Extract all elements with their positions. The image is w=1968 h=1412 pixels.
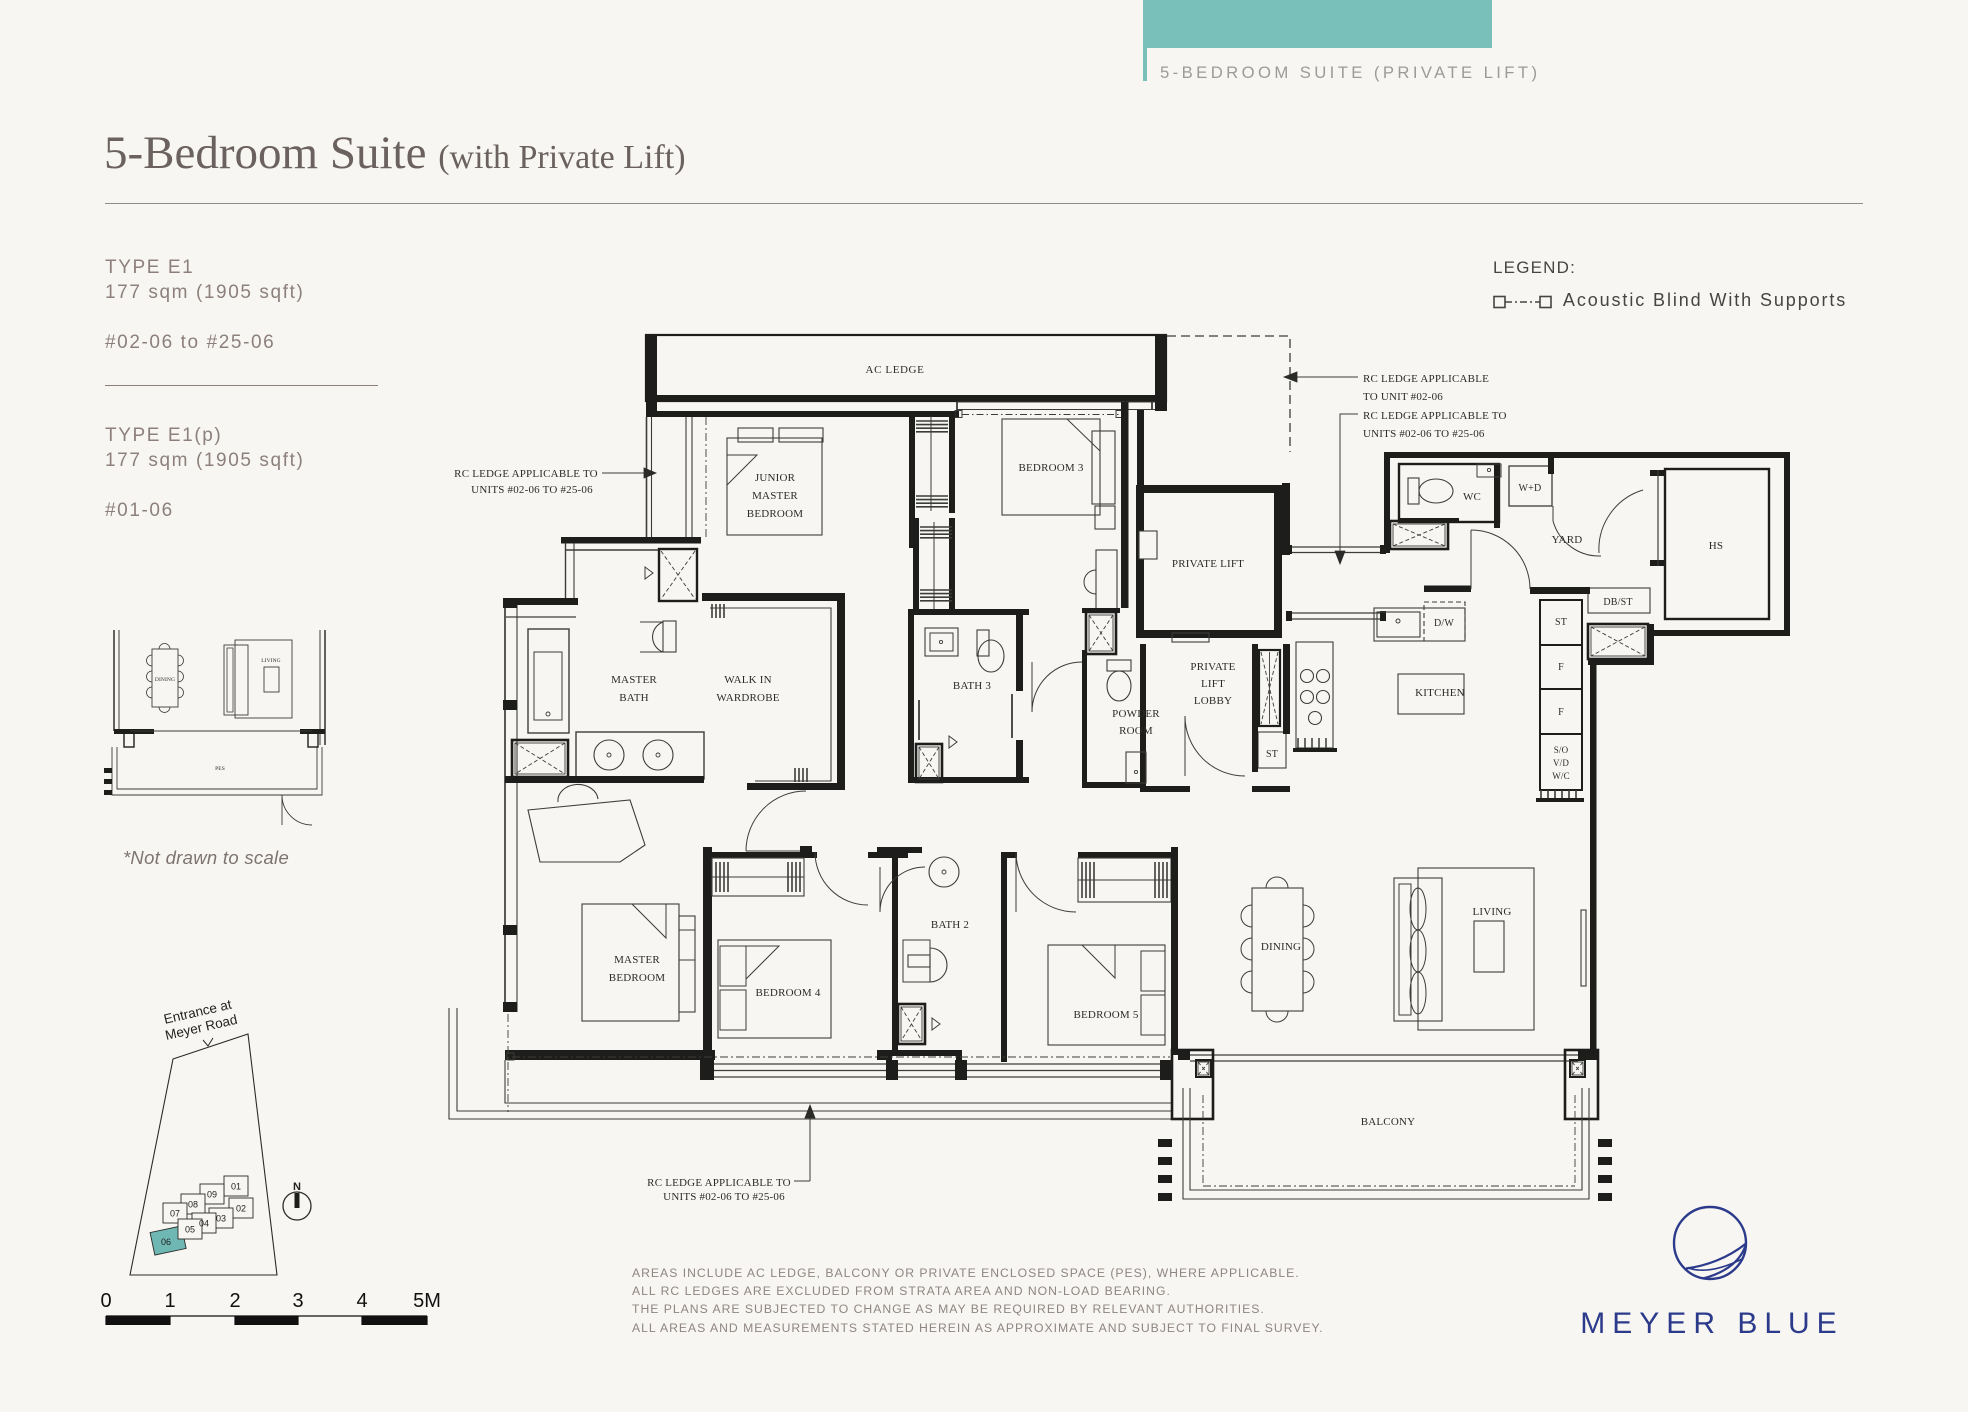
svg-text:05: 05 [185, 1225, 195, 1235]
svg-text:BEDROOM: BEDROOM [747, 508, 803, 520]
svg-text:1: 1 [164, 1290, 175, 1312]
svg-text:ST: ST [1266, 749, 1278, 760]
svg-text:PRIVATE LIFT: PRIVATE LIFT [1172, 558, 1244, 570]
svg-text:W+D: W+D [1519, 483, 1542, 494]
svg-text:07: 07 [170, 1209, 180, 1219]
svg-text:MASTER: MASTER [752, 490, 798, 502]
svg-text:MASTER: MASTER [614, 954, 660, 966]
svg-text:PES: PES [215, 766, 225, 772]
svg-text:KITCHEN: KITCHEN [1415, 687, 1465, 699]
svg-text:MEYER BLUE: MEYER BLUE [1580, 1307, 1843, 1340]
svg-text:F: F [1558, 662, 1564, 673]
svg-text:BEDROOM: BEDROOM [609, 972, 665, 984]
svg-text:BATH 2: BATH 2 [931, 919, 969, 931]
svg-text:N: N [293, 1181, 301, 1193]
svg-text:WARDROBE: WARDROBE [716, 692, 779, 704]
svg-text:POWDER: POWDER [1112, 708, 1160, 720]
svg-text:UNITS #02-06 TO #25-06: UNITS #02-06 TO #25-06 [471, 484, 593, 496]
svg-text:0: 0 [100, 1290, 111, 1312]
svg-text:LIVING: LIVING [1472, 906, 1511, 918]
svg-text:LOBBY: LOBBY [1194, 695, 1232, 707]
svg-text:ST: ST [1555, 617, 1567, 628]
svg-text:ROOM: ROOM [1119, 725, 1153, 737]
svg-text:RC LEDGE APPLICABLE TO: RC LEDGE APPLICABLE TO [1363, 410, 1507, 422]
svg-text:PRIVATE: PRIVATE [1190, 661, 1235, 673]
svg-text:LIFT: LIFT [1201, 678, 1225, 690]
svg-text:BALCONY: BALCONY [1361, 1116, 1416, 1128]
svg-text:DINING: DINING [1261, 941, 1301, 953]
svg-text:BEDROOM 3: BEDROOM 3 [1018, 462, 1083, 474]
svg-text:02: 02 [236, 1204, 246, 1214]
svg-text:UNITS #02-06 TO #25-06: UNITS #02-06 TO #25-06 [1363, 428, 1485, 440]
svg-text:01: 01 [231, 1182, 241, 1192]
svg-text:V/D: V/D [1553, 758, 1569, 768]
svg-text:AC LEDGE: AC LEDGE [866, 364, 925, 376]
svg-text:HS: HS [1709, 540, 1723, 552]
svg-text:BATH: BATH [619, 692, 649, 704]
svg-text:4: 4 [356, 1290, 367, 1312]
svg-text:DINING: DINING [155, 677, 175, 683]
svg-text:MASTER: MASTER [611, 674, 657, 686]
svg-text:04: 04 [199, 1219, 209, 1229]
svg-text:WC: WC [1463, 491, 1481, 503]
svg-text:W/C: W/C [1552, 771, 1570, 781]
svg-text:D/W: D/W [1434, 618, 1454, 629]
svg-text:06: 06 [161, 1237, 171, 1247]
svg-text:UNITS #02-06 TO #25-06: UNITS #02-06 TO #25-06 [663, 1191, 785, 1203]
svg-text:TO UNIT #02-06: TO UNIT #02-06 [1363, 391, 1443, 403]
svg-text:LIVING: LIVING [261, 658, 281, 664]
svg-text:03: 03 [216, 1214, 226, 1224]
svg-text:BEDROOM 5: BEDROOM 5 [1073, 1009, 1138, 1021]
svg-text:3: 3 [292, 1290, 303, 1312]
svg-text:S/O: S/O [1554, 745, 1569, 755]
svg-text:08: 08 [188, 1200, 198, 1210]
svg-text:BEDROOM 4: BEDROOM 4 [755, 987, 820, 999]
svg-text:09: 09 [207, 1190, 217, 1200]
svg-text:2: 2 [229, 1290, 240, 1312]
svg-text:RC LEDGE APPLICABLE TO: RC LEDGE APPLICABLE TO [454, 468, 598, 480]
svg-text:RC LEDGE APPLICABLE: RC LEDGE APPLICABLE [1363, 373, 1489, 385]
svg-text:DB/ST: DB/ST [1603, 597, 1632, 608]
svg-text:BATH 3: BATH 3 [953, 680, 991, 692]
svg-text:JUNIOR: JUNIOR [755, 472, 796, 484]
svg-text:RC LEDGE APPLICABLE TO: RC LEDGE APPLICABLE TO [647, 1177, 791, 1189]
svg-text:5M: 5M [413, 1290, 441, 1312]
svg-text:F: F [1558, 707, 1564, 718]
svg-text:WALK IN: WALK IN [724, 674, 772, 686]
svg-text:*Not drawn to scale: *Not drawn to scale [123, 847, 289, 868]
